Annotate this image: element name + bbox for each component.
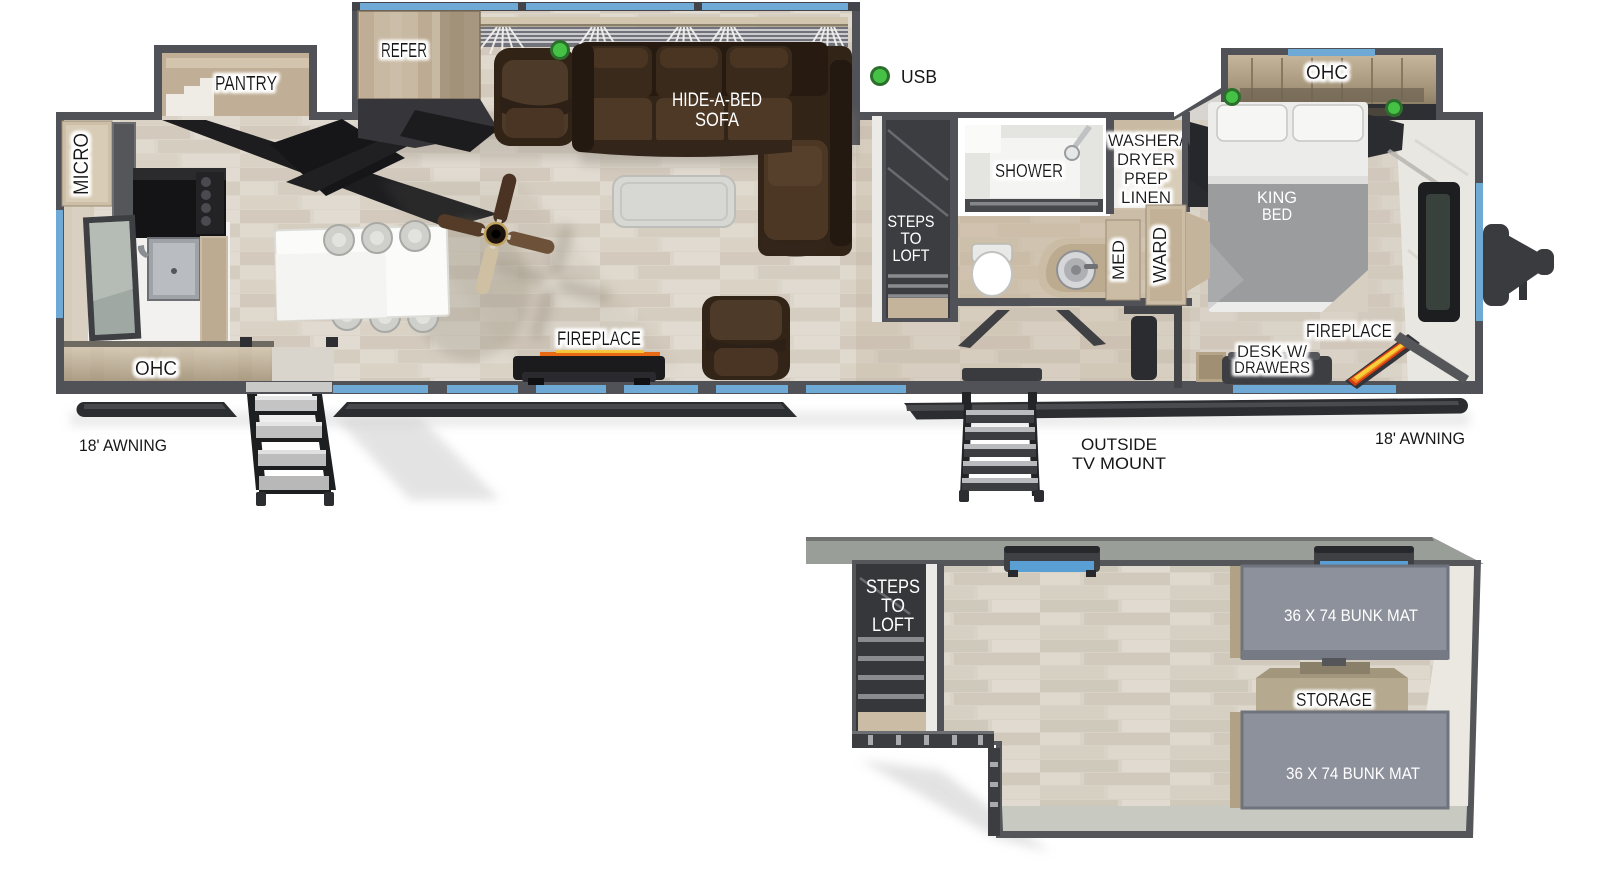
svg-text:LOFT: LOFT [893, 246, 930, 265]
svg-text:OHC: OHC [135, 358, 177, 380]
svg-text:USB: USB [901, 67, 937, 87]
svg-text:BED: BED [1262, 205, 1292, 224]
svg-text:TO: TO [881, 596, 905, 617]
svg-text:WASHER/: WASHER/ [1108, 131, 1184, 150]
svg-text:WARD: WARD [1150, 227, 1170, 283]
svg-text:SOFA: SOFA [695, 110, 739, 131]
svg-text:OUTSIDE: OUTSIDE [1081, 435, 1157, 454]
svg-text:PREP: PREP [1124, 169, 1168, 188]
svg-text:18' AWNING: 18' AWNING [1375, 429, 1465, 448]
svg-text:TV MOUNT: TV MOUNT [1072, 454, 1166, 473]
svg-text:36 X 74 BUNK MAT: 36 X 74 BUNK MAT [1284, 606, 1418, 625]
svg-text:SHOWER: SHOWER [995, 161, 1063, 181]
svg-text:STEPS: STEPS [866, 577, 920, 598]
svg-text:MICRO: MICRO [70, 133, 93, 195]
svg-text:MED: MED [1109, 240, 1128, 280]
svg-text:FIREPLACE: FIREPLACE [1306, 321, 1392, 341]
svg-text:LOFT: LOFT [872, 615, 914, 636]
svg-text:STORAGE: STORAGE [1296, 690, 1372, 710]
svg-text:OHC: OHC [1306, 62, 1348, 84]
svg-text:36 X 74 BUNK MAT: 36 X 74 BUNK MAT [1286, 764, 1420, 783]
svg-text:DRYER: DRYER [1117, 150, 1175, 169]
svg-text:HIDE-A-BED: HIDE-A-BED [672, 90, 762, 111]
svg-text:FIREPLACE: FIREPLACE [557, 329, 641, 350]
svg-text:DRAWERS: DRAWERS [1234, 358, 1310, 377]
svg-text:PANTRY: PANTRY [215, 73, 277, 95]
svg-text:REFER: REFER [381, 40, 427, 62]
svg-text:18' AWNING: 18' AWNING [79, 436, 167, 455]
svg-text:LINEN: LINEN [1121, 188, 1171, 207]
